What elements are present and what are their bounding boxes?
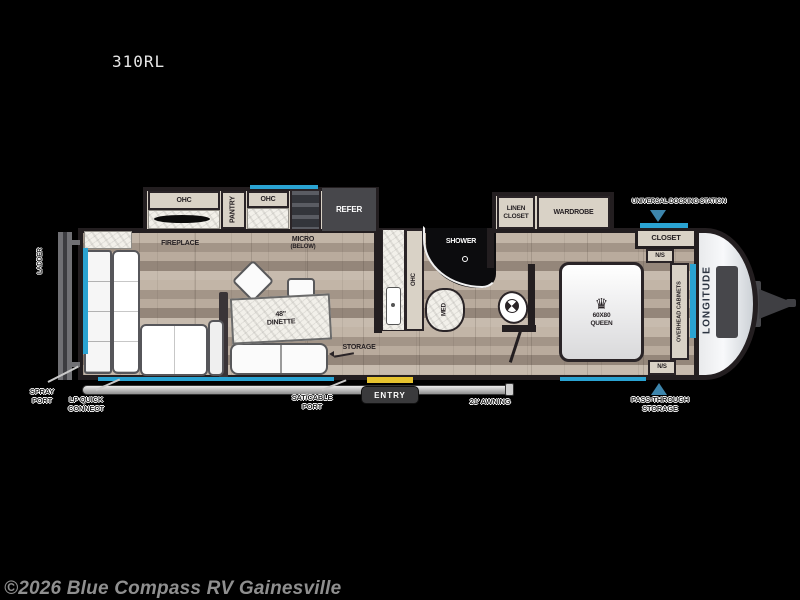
sofa-seats-bottom <box>140 324 208 376</box>
nightstand-bottom: N/S <box>648 360 676 375</box>
bath-wall-left <box>374 228 382 333</box>
linen-closet: LINEN CLOSET <box>497 196 535 229</box>
bed-size-label: 60X80 <box>593 312 611 319</box>
queen-bed: ♛ 60X80 QUEEN <box>559 262 644 362</box>
showerhead-icon <box>462 256 468 262</box>
closet-led-strip <box>640 223 688 228</box>
linen-line2: CLOSET <box>503 213 528 220</box>
micro-line1: MICRO <box>281 236 325 244</box>
spray-line2: PORT <box>20 397 64 406</box>
entry-label: ENTRY <box>374 391 406 400</box>
docking-station-label: UNIVERSAL DOCKING STATION <box>606 198 752 205</box>
docking-station-arrow-icon <box>650 210 666 222</box>
storage-label: STORAGE <box>336 344 382 352</box>
entry-step <box>367 377 413 383</box>
ohc2-label: OHC <box>261 196 276 204</box>
micro-label: MICRO (BELOW) <box>281 236 325 251</box>
bed-type-label: QUEEN <box>590 320 612 327</box>
lp-quick-connect-label: LP QUICK CONNECT <box>60 396 112 413</box>
dinette-table: 48" DINETTE <box>230 293 332 344</box>
cooktop <box>290 189 321 231</box>
pass-line2: STORAGE <box>626 405 694 414</box>
pass-through-label: PASS-THROUGH STORAGE <box>626 396 694 413</box>
fireplace-insert <box>154 215 210 223</box>
shower-label: SHOWER <box>426 238 496 245</box>
sofa-seats-vertical <box>112 250 140 374</box>
pass-through-arrow-icon <box>651 383 667 395</box>
overhead-label: OVERHEAD CABINETS <box>676 281 682 342</box>
bedroom-wall-vertical <box>528 264 535 328</box>
lp-line2: CONNECT <box>60 405 112 414</box>
ladder-mount-top <box>70 240 80 245</box>
rear-counter <box>84 231 132 249</box>
wardrobe-label: WARDROBE <box>553 209 593 217</box>
bath-ohc: OHC <box>405 229 424 331</box>
kitchen-ohc-1: OHC <box>148 191 220 210</box>
entry-badge: ENTRY <box>361 386 419 404</box>
refrigerator: REFER <box>322 188 376 231</box>
hitch-coupler <box>786 299 796 307</box>
overhead-cabinets: OVERHEAD CABINETS <box>670 263 689 360</box>
medicine-cabinet: MED <box>425 288 465 332</box>
wardrobe: WARDROBE <box>537 196 610 229</box>
micro-line2: (BELOW) <box>281 244 325 251</box>
storage-arrow-head <box>329 351 334 357</box>
sofa-arm <box>208 320 224 376</box>
dinette-line2: DINETTE <box>267 318 296 327</box>
sat-cable-port-label: SAT/CABLE PORT <box>284 394 340 411</box>
rear-ladder <box>58 232 72 380</box>
pantry-label: PANTRY <box>230 197 238 224</box>
ns-bottom-label: N/S <box>657 364 666 371</box>
linen-line1: LINEN <box>503 205 528 212</box>
kitchen-slide-led-strip <box>250 185 318 189</box>
front-closet: CLOSET <box>635 228 697 249</box>
bath-ohc-label: OHC <box>411 274 418 287</box>
sofa-backrest <box>84 250 112 374</box>
toilet-seat <box>505 299 519 313</box>
kitchen-ohc-2: OHC <box>247 191 289 208</box>
dinette-bench <box>230 343 328 375</box>
bath-faucet-dot <box>391 303 395 307</box>
floorplan-image: 310RL LONGITUDE LADDER OHC PANTRY OHC RE… <box>0 0 800 600</box>
copyright-watermark: ©2026 Blue Compass RV Gainesville <box>4 578 341 600</box>
bed-led-strip <box>560 377 646 381</box>
awning-label: 21' AWNING <box>455 398 525 407</box>
rear-led-strip <box>83 248 88 354</box>
front-utility-box <box>716 266 738 338</box>
ns-top-label: N/S <box>655 253 664 260</box>
med-label: MED <box>442 304 449 317</box>
bottom-led-strip <box>98 377 334 381</box>
nightstand-top: N/S <box>646 249 674 263</box>
refer-label: REFER <box>336 205 362 214</box>
awning-end-cap <box>505 383 514 396</box>
ohc1-label: OHC <box>177 197 192 205</box>
closet-label: CLOSET <box>651 234 680 242</box>
hitch-tongue <box>759 289 789 319</box>
front-led-strip <box>690 264 696 338</box>
crown-icon: ♛ <box>595 297 608 312</box>
brand-label: LONGITUDE <box>699 252 715 348</box>
model-title: 310RL <box>112 52 165 71</box>
kitchen-counter-2 <box>247 208 289 229</box>
sat-line2: PORT <box>284 403 340 412</box>
fireplace-label: FIREPLACE <box>145 240 215 248</box>
ladder-label: LADDER <box>34 238 46 284</box>
pantry-cabinet: PANTRY <box>221 191 246 229</box>
spray-port-label: SPRAY PORT <box>20 388 64 405</box>
